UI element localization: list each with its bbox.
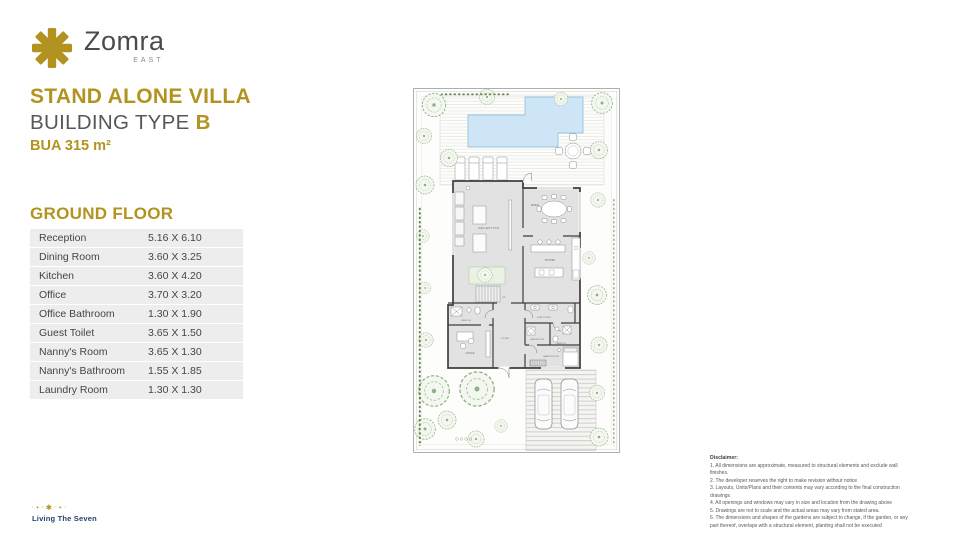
label-office: OFFICE [466, 352, 475, 355]
bua-area: BUA 315 m² [30, 138, 251, 154]
room-name: Kitchen [30, 270, 74, 282]
room-dims: 1.30 X 1.90 [148, 308, 202, 320]
table-row: Dining Room3.60 X 3.25 [30, 248, 243, 266]
table-row: Nanny's Bathroom1.55 X 1.85 [30, 362, 243, 380]
floor-grill [530, 360, 546, 366]
floor-plan: RECEPTION DINING KITCHEN OFFICE FOYER GU… [413, 88, 620, 453]
disclaimer-item: 4. All openings and windows may vary in … [710, 500, 912, 508]
room-dims: 3.70 X 3.20 [148, 289, 202, 301]
disclaimer: Disclaimer: 1. All dimensions are approx… [710, 455, 912, 530]
disclaimer-heading: Disclaimer: [710, 455, 912, 463]
table-row: Reception5.16 X 6.10 [30, 229, 243, 247]
room-name: Office [30, 289, 66, 301]
section-heading: GROUND FLOOR [30, 204, 173, 224]
room-dims: 3.65 X 1.50 [148, 327, 202, 339]
disclaimer-item: 3. Layouts, Units/Plans and their conten… [710, 485, 912, 500]
room-name: Laundry Room [30, 384, 108, 396]
dimensions-table: Reception5.16 X 6.10 Dining Room3.60 X 3… [30, 229, 243, 400]
floor-plan-drawing: RECEPTION DINING KITCHEN OFFICE FOYER GU… [413, 88, 620, 453]
table-row: Guest Toilet3.65 X 1.50 [30, 324, 243, 342]
room-dims: 1.55 X 1.85 [148, 365, 202, 377]
room-dims: 3.60 X 4.20 [148, 270, 202, 282]
label-up: UP [502, 297, 506, 299]
stars-row [32, 504, 97, 512]
footer: Living The Seven [32, 504, 97, 523]
room-name: Guest Toilet [30, 327, 94, 339]
room-dims: 3.65 X 1.30 [148, 346, 202, 358]
page-title: STAND ALONE VILLA [30, 84, 251, 110]
room-name: Reception [30, 232, 86, 244]
disclaimer-item: 1. All dimensions are approximate, measu… [710, 463, 912, 478]
label-dining: DINING [531, 204, 540, 207]
asterisk-logo-icon [30, 26, 74, 70]
building-type: BUILDING TYPE B [30, 110, 251, 136]
table-row: Laundry Room1.30 X 1.30 [30, 381, 243, 399]
star-icon [36, 506, 40, 511]
table-row: Kitchen3.60 X 4.20 [30, 267, 243, 285]
star-icon [32, 506, 33, 510]
room-name: Office Bathroom [30, 308, 115, 320]
brand-logo: Zomra EAST [30, 26, 165, 70]
car [561, 379, 578, 429]
room-name: Nanny's Bathroom [30, 365, 125, 377]
building-type-value: B [196, 111, 211, 134]
label-foyer: FOYER [501, 338, 509, 340]
brand-name: Zomra [84, 28, 165, 55]
inner-patio [469, 267, 505, 284]
star-icon [55, 506, 56, 510]
room-name: Nanny's Room [30, 346, 108, 358]
title-block: STAND ALONE VILLA BUILDING TYPE B BUA 31… [30, 84, 251, 154]
room-name: Dining Room [30, 251, 100, 263]
label-reception: RECEPTION [478, 226, 499, 230]
room-dims: 5.16 X 6.10 [148, 232, 202, 244]
table-row: Office Bathroom1.30 X 1.90 [30, 305, 243, 323]
disclaimer-item: 2. The developer reserves the right to m… [710, 478, 912, 486]
room-dims: 1.30 X 1.30 [148, 384, 202, 396]
table-row: Office3.70 X 3.20 [30, 286, 243, 304]
car [535, 379, 552, 429]
star-icon [65, 506, 66, 510]
laundry-fixtures [527, 327, 535, 335]
building-type-label: BUILDING TYPE [30, 111, 196, 134]
label-kitchen: KITCHEN [545, 259, 556, 262]
star-icon [42, 506, 43, 510]
label-guest-toilet: GUEST TOILET [537, 317, 552, 319]
brand-sub: EAST [84, 57, 165, 64]
label-nanny: NANNY'S ROOM [543, 355, 559, 358]
star-icon [58, 506, 62, 511]
disclaimer-item: 6. The dimensions and shapes of the gard… [710, 515, 912, 530]
driveway [526, 370, 596, 451]
disclaimer-item: 5. Drawings are not to scale and the act… [710, 508, 912, 516]
room-dims: 3.60 X 3.25 [148, 251, 202, 263]
brochure-page: Zomra EAST STAND ALONE VILLA BUILDING TY… [0, 0, 960, 540]
staircase [476, 286, 500, 302]
footer-tagline: Living The Seven [32, 514, 97, 523]
table-row: Nanny's Room3.65 X 1.30 [30, 343, 243, 361]
star-icon [46, 504, 52, 512]
label-laundry: LAUNDRY ROOM [530, 338, 544, 341]
